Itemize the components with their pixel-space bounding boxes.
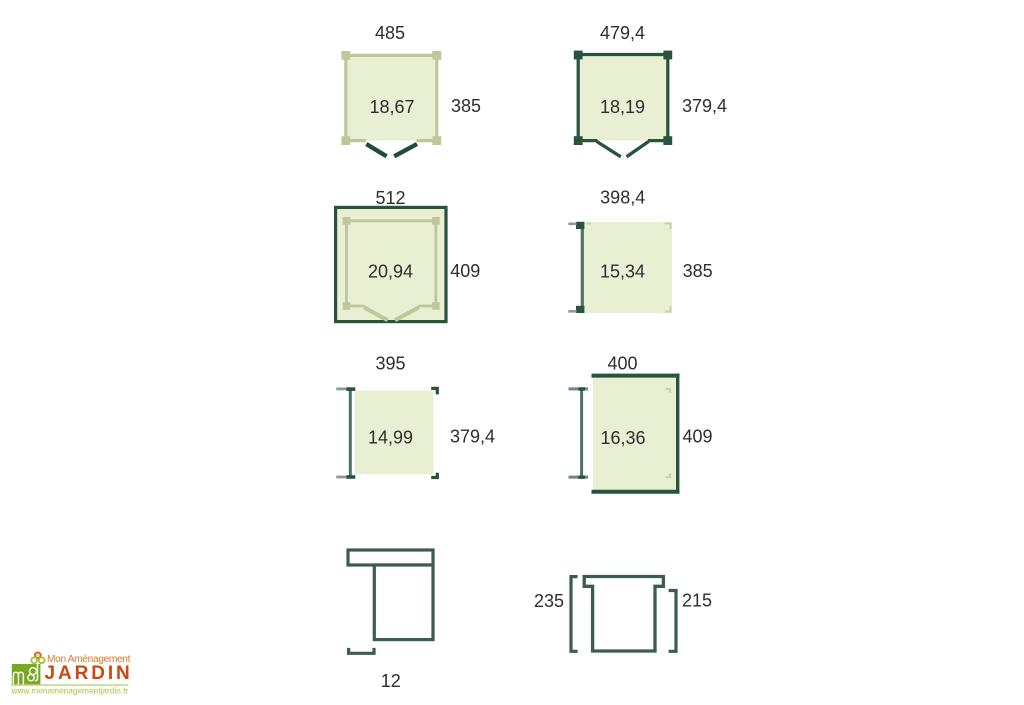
svg-text:400: 400	[607, 354, 637, 374]
svg-text:16,36: 16,36	[600, 428, 645, 448]
svg-text:235: 235	[534, 591, 564, 611]
svg-text:385: 385	[451, 96, 481, 116]
svg-text:379,4: 379,4	[682, 96, 727, 116]
svg-text:512: 512	[375, 188, 405, 208]
svg-text:15,34: 15,34	[600, 262, 645, 282]
svg-text:409: 409	[682, 427, 712, 447]
svg-text:JARDIN: JARDIN	[45, 663, 133, 684]
svg-text:409: 409	[450, 261, 480, 281]
svg-text:379,4: 379,4	[450, 427, 495, 447]
svg-text:20,94: 20,94	[368, 262, 413, 282]
svg-text:www.monamenagementjardin.fr: www.monamenagementjardin.fr	[11, 685, 129, 695]
svg-text:395: 395	[375, 354, 405, 374]
svg-text:18,67: 18,67	[369, 97, 414, 117]
svg-text:398,4: 398,4	[600, 188, 645, 208]
svg-text:18,19: 18,19	[600, 97, 645, 117]
svg-text:14,99: 14,99	[368, 427, 413, 447]
svg-text:215: 215	[682, 591, 712, 611]
svg-text:385: 385	[683, 261, 713, 281]
svg-text:12: 12	[381, 671, 401, 691]
svg-text:485: 485	[375, 23, 405, 43]
svg-text:479,4: 479,4	[600, 23, 645, 43]
